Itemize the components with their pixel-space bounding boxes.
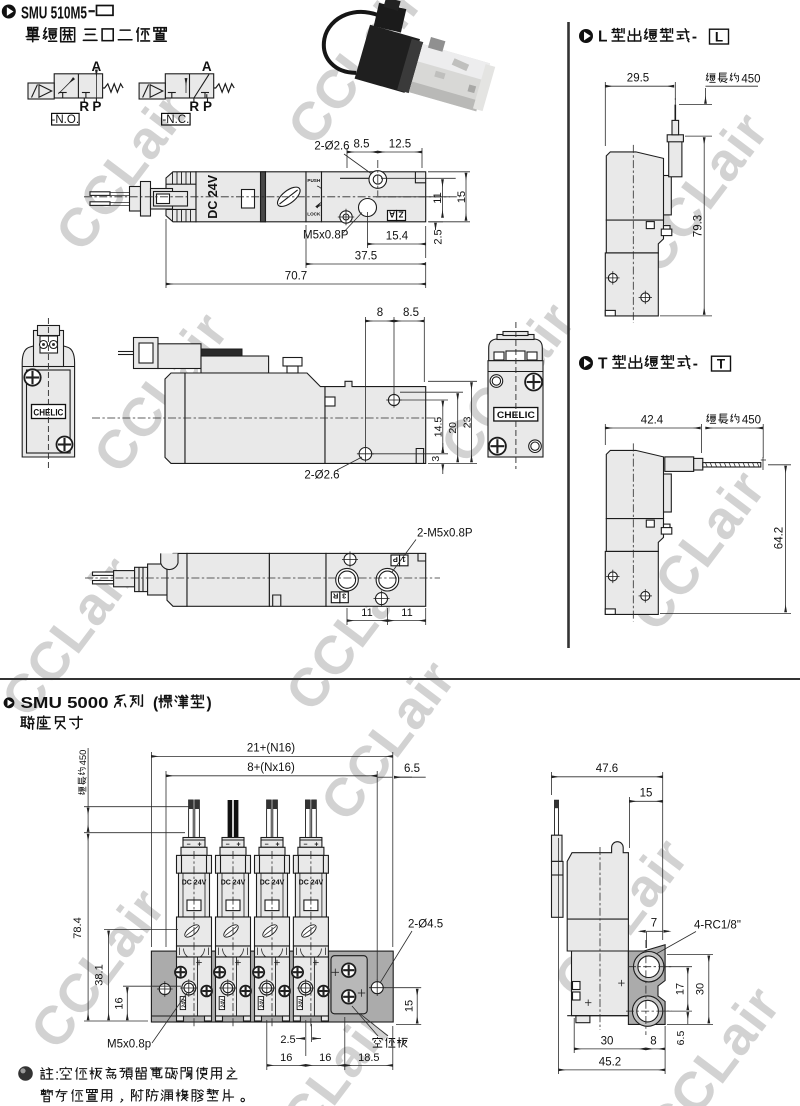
svg-text:29.5: 29.5 (627, 73, 649, 85)
svg-text:L: L (715, 30, 723, 45)
svg-text:11: 11 (432, 192, 444, 203)
svg-text:R: R (79, 99, 89, 114)
svg-text:11: 11 (401, 607, 412, 619)
svg-text:Z: Z (398, 210, 403, 220)
svg-text:8: 8 (650, 1035, 656, 1047)
svg-text:16: 16 (280, 1052, 292, 1064)
svg-text:64.2: 64.2 (774, 527, 786, 549)
svg-text:T: T (598, 356, 608, 373)
svg-text:30: 30 (601, 1035, 614, 1047)
svg-text:16: 16 (114, 997, 126, 1009)
svg-text:47.6: 47.6 (596, 763, 618, 775)
svg-text:-: - (693, 356, 698, 373)
svg-text:79.3: 79.3 (693, 215, 705, 237)
svg-text:-N.O.: -N.O. (52, 114, 79, 126)
svg-text:L: L (598, 29, 607, 46)
svg-text:(: ( (153, 695, 159, 712)
svg-text:2-M5x0.8P: 2-M5x0.8P (417, 528, 473, 540)
svg-text:14.5: 14.5 (432, 417, 444, 438)
svg-text:A: A (202, 59, 212, 74)
svg-text:-N.C.: -N.C. (162, 114, 189, 126)
svg-text:LOCK: LOCK (307, 212, 321, 217)
svg-text:2-Ø4.5: 2-Ø4.5 (408, 919, 443, 931)
svg-text:R: R (189, 99, 199, 114)
svg-text:2.5: 2.5 (280, 1034, 295, 1046)
svg-text:8: 8 (377, 307, 383, 319)
svg-text:450: 450 (742, 415, 761, 427)
svg-text:2-Ø2.6: 2-Ø2.6 (304, 470, 339, 482)
svg-text:30: 30 (695, 983, 707, 995)
svg-text:38.1: 38.1 (94, 964, 106, 985)
svg-text:A: A (389, 210, 395, 220)
svg-text:17: 17 (675, 983, 687, 995)
svg-text:T: T (717, 357, 726, 372)
svg-text:15: 15 (456, 191, 468, 203)
svg-text:P: P (203, 99, 212, 114)
svg-text:24V: 24V (220, 998, 226, 1008)
svg-text:6.5: 6.5 (404, 763, 420, 775)
svg-text:8.5: 8.5 (403, 307, 419, 319)
svg-text:P: P (393, 555, 398, 564)
svg-text:16: 16 (319, 1052, 331, 1064)
svg-text:15: 15 (640, 788, 653, 800)
svg-text:450: 450 (741, 74, 760, 86)
svg-text:20: 20 (447, 422, 459, 434)
svg-text:A: A (92, 59, 102, 74)
svg-text:M5x0.8P: M5x0.8P (303, 230, 349, 242)
svg-text:24V: 24V (259, 998, 265, 1008)
svg-text:R: R (332, 592, 338, 601)
svg-text:P: P (92, 99, 101, 114)
svg-text:11: 11 (361, 607, 372, 619)
svg-text:21+(N16): 21+(N16) (247, 743, 295, 755)
svg-text:2.5: 2.5 (433, 229, 445, 244)
svg-text:7: 7 (651, 918, 657, 930)
svg-text:15: 15 (404, 1000, 416, 1012)
svg-text:PUSH: PUSH (307, 178, 320, 183)
svg-text:23: 23 (461, 416, 473, 428)
svg-text:2-Ø2.6: 2-Ø2.6 (314, 141, 349, 153)
svg-text:8+(Nx16): 8+(Nx16) (247, 762, 295, 774)
svg-text:70.7: 70.7 (285, 271, 307, 283)
svg-text:45.2: 45.2 (599, 1056, 621, 1068)
svg-text:6.5: 6.5 (675, 1031, 687, 1046)
svg-text:3: 3 (342, 592, 346, 601)
svg-text:SMU 5000: SMU 5000 (21, 695, 109, 712)
svg-text:42.4: 42.4 (641, 415, 664, 427)
svg-text:450: 450 (78, 750, 89, 766)
svg-text:-: - (692, 29, 697, 46)
svg-text:24V: 24V (298, 998, 304, 1008)
svg-text:15.4: 15.4 (386, 231, 409, 243)
svg-text:4-RC1/8": 4-RC1/8" (694, 920, 741, 932)
svg-text:18.5: 18.5 (358, 1052, 379, 1064)
svg-text:3: 3 (430, 456, 442, 462)
svg-text:37.5: 37.5 (355, 251, 377, 263)
svg-text:M5x0.8p: M5x0.8p (107, 1039, 151, 1051)
svg-text::: : (55, 1068, 59, 1084)
svg-text:12.5: 12.5 (389, 139, 411, 151)
svg-text:SMU 510M5: SMU 510M5 (21, 3, 87, 23)
svg-text:78.4: 78.4 (72, 917, 84, 938)
svg-text:): ) (207, 695, 212, 712)
svg-text:8.5: 8.5 (354, 139, 370, 151)
